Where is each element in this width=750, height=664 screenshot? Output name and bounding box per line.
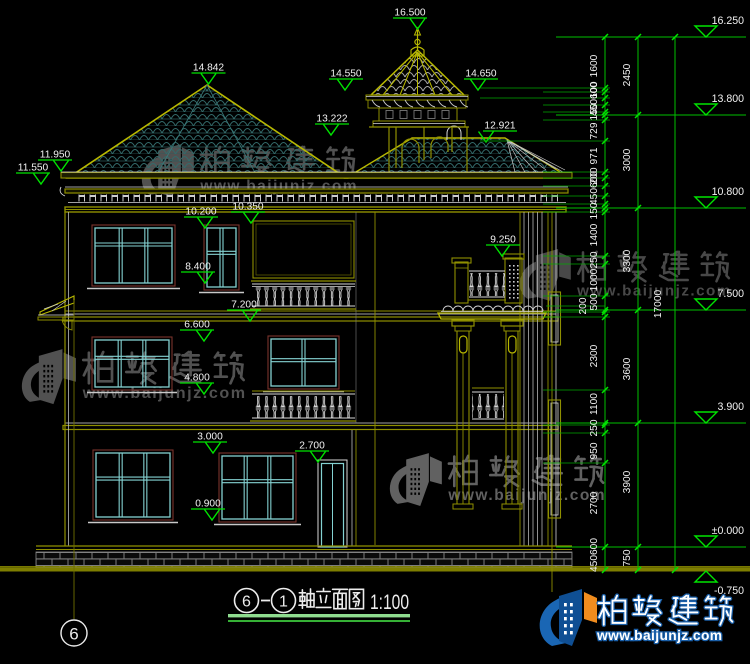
svg-text:14.842: 14.842 [193,63,224,74]
svg-text:950: 950 [589,442,600,459]
svg-text:3.000: 3.000 [197,432,223,443]
svg-text:4.800: 4.800 [184,373,210,384]
svg-text:10.200: 10.200 [185,207,216,218]
svg-text:150: 150 [589,103,600,120]
svg-text:500: 500 [589,293,600,310]
svg-text:6.600: 6.600 [184,320,210,331]
svg-text:450600: 450600 [589,538,600,572]
svg-text:1600: 1600 [589,54,600,77]
svg-text:250: 250 [589,419,600,436]
svg-text:14.550: 14.550 [330,69,361,80]
svg-text:11.950: 11.950 [40,150,71,161]
svg-text:16.500: 16.500 [394,8,425,19]
svg-text:250: 250 [589,251,600,268]
svg-text:14.650: 14.650 [465,69,496,80]
svg-text:11.550: 11.550 [18,163,49,174]
svg-text:8.400: 8.400 [185,262,211,273]
svg-text:0.900: 0.900 [195,499,221,510]
svg-text:10.800: 10.800 [712,186,745,198]
svg-text:2450: 2450 [622,63,633,86]
svg-text:150: 150 [589,202,600,219]
svg-text:1000: 1000 [589,268,600,291]
svg-text:450600: 450600 [589,171,600,205]
svg-text:1: 1 [279,594,288,611]
svg-text:1100: 1100 [589,393,600,415]
svg-text:www.baijunjz.com: www.baijunjz.com [596,628,722,643]
svg-text:6: 6 [69,625,78,644]
svg-text:13.222: 13.222 [316,114,347,125]
svg-text:3600: 3600 [622,357,633,380]
svg-text:9.250: 9.250 [490,235,516,246]
svg-text:750: 750 [622,549,633,566]
svg-text:16.250: 16.250 [712,15,745,27]
svg-text:www.baijunjz.com: www.baijunjz.com [447,487,606,504]
svg-text:7.200: 7.200 [231,300,257,311]
svg-text:2300: 2300 [589,344,600,367]
svg-text:2700: 2700 [589,491,600,514]
svg-text:1:100: 1:100 [370,591,409,614]
svg-text:-0.750: -0.750 [714,585,744,597]
svg-text:200: 200 [578,297,589,314]
svg-text:10.350: 10.350 [232,202,263,213]
svg-text:6: 6 [242,594,251,611]
svg-text:7.500: 7.500 [717,288,744,300]
svg-text:3300: 3300 [622,249,633,272]
svg-text:12.921: 12.921 [484,121,515,132]
svg-text:729: 729 [589,122,600,139]
svg-text:971: 971 [589,147,600,164]
svg-text:17000: 17000 [653,290,664,319]
svg-text:±0.000: ±0.000 [712,525,744,537]
svg-text:1400: 1400 [589,223,600,246]
svg-text:3.900: 3.900 [717,401,744,413]
svg-text:3000: 3000 [622,148,633,171]
svg-text:2.700: 2.700 [299,441,325,452]
svg-text:13.800: 13.800 [712,93,745,105]
svg-text:3900: 3900 [622,470,633,493]
